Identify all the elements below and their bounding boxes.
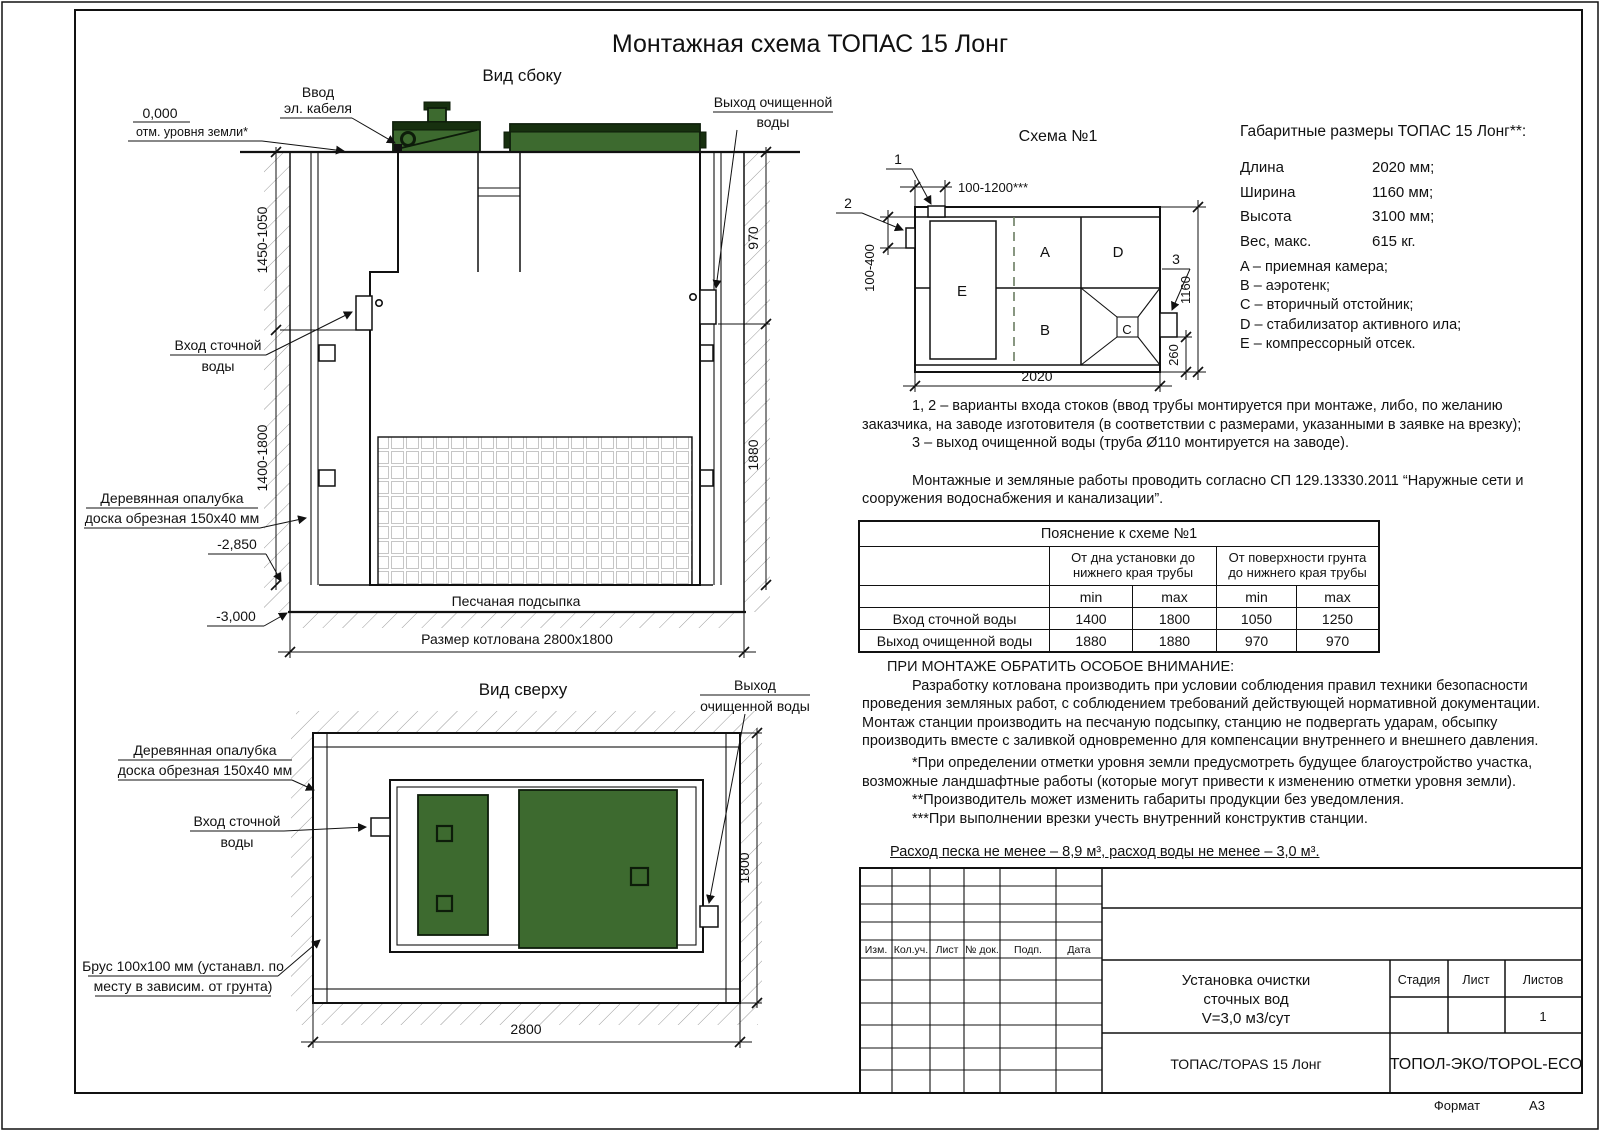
svg-text:Деревянная опалубка: Деревянная опалубка bbox=[133, 742, 276, 758]
marker-3: 3 bbox=[1172, 251, 1180, 267]
top-view-title: Вид сверху bbox=[479, 680, 568, 699]
footnotes-block: *При определении отметки уровня земли пр… bbox=[862, 754, 1557, 828]
svg-text:Лист: Лист bbox=[936, 944, 959, 956]
table-cell: 1400 bbox=[1050, 608, 1133, 630]
spec-row: Длина2020 мм; bbox=[1240, 156, 1434, 181]
svg-text:-2,850: -2,850 bbox=[217, 536, 257, 552]
compartment-e: E bbox=[957, 283, 967, 300]
table-cell: 1050 bbox=[1217, 608, 1297, 630]
specs-heading: Габаритные размеры ТОПАС 15 Лонг**: bbox=[1240, 123, 1526, 141]
right-lid-plan bbox=[519, 790, 677, 948]
footnote-3: ***При выполнении врезки учесть внутренн… bbox=[862, 810, 1557, 829]
table-cell: 1880 bbox=[1133, 630, 1217, 653]
legend-item: B – аэротенк; bbox=[1240, 277, 1461, 296]
dim-length: 2020 bbox=[1021, 368, 1052, 384]
dim-left: 100-400 bbox=[862, 244, 877, 292]
table-cell: 1800 bbox=[1133, 608, 1217, 630]
outlet-stub-plan bbox=[700, 906, 718, 927]
cable-entry-point bbox=[394, 144, 402, 152]
zero-level-label: 0,000 bbox=[142, 105, 177, 121]
table-cell: Вход сточной воды bbox=[859, 608, 1050, 630]
footnote-1: *При определении отметки уровня земли пр… bbox=[862, 754, 1557, 791]
inlet-leader-side: Вход сточной воды bbox=[170, 312, 352, 374]
dim-height: 1160 bbox=[1178, 276, 1193, 304]
marker-2: 2 bbox=[844, 195, 852, 211]
table-cell: 1250 bbox=[1297, 608, 1380, 630]
schema-notes: 1, 2 – варианты входа стоков (ввод трубы… bbox=[862, 397, 1554, 509]
product-name: ТОПАС/TOPAS 15 Лонг bbox=[1170, 1056, 1321, 1072]
spec-row: Ширина1160 мм; bbox=[1240, 181, 1434, 206]
svg-text:Подп.: Подп. bbox=[1014, 944, 1042, 956]
table-cell: 970 bbox=[1297, 630, 1380, 653]
table-cell: min bbox=[1050, 586, 1133, 608]
dim-body-depth: 1400-1800 bbox=[254, 424, 270, 491]
outlet-stub-3 bbox=[1160, 313, 1177, 337]
marker-1: 1 bbox=[894, 151, 902, 167]
dim-pit-size: Размер котлована 2800х1800 bbox=[421, 631, 613, 647]
format-label: Формат bbox=[1434, 1098, 1480, 1113]
left-lid-side bbox=[393, 102, 480, 152]
table-cell: max bbox=[1133, 586, 1217, 608]
table-cell bbox=[859, 586, 1050, 608]
attention-body: Разработку котлована производить при усл… bbox=[862, 677, 1557, 751]
note-variants: 1, 2 – варианты входа стоков (ввод трубы… bbox=[862, 397, 1554, 434]
formwork-leader-top: Деревянная опалубка доска обрезная 150х4… bbox=[118, 742, 314, 790]
doc-title-3: V=3,0 м3/сут bbox=[1202, 1010, 1291, 1027]
svg-text:месту в зависим. от грунта): месту в зависим. от грунта) bbox=[94, 978, 273, 994]
tank-plan bbox=[371, 780, 718, 952]
dim-outlet-depth: 970 bbox=[745, 226, 761, 250]
dim-depth: 1800 bbox=[736, 852, 752, 883]
outlet-leader-side: Выход очищенной воды bbox=[713, 94, 833, 288]
consumption-note: Расход песка не менее – 8,9 м³, расход в… bbox=[890, 844, 1319, 860]
svg-text:-3,000: -3,000 bbox=[216, 608, 256, 624]
stage-header: Стадия bbox=[1398, 973, 1441, 987]
table-cell bbox=[859, 547, 1050, 586]
table-cell: 1880 bbox=[1050, 630, 1133, 653]
tank-side-outline bbox=[370, 152, 700, 585]
dim-outlet-bottom: 1880 bbox=[745, 439, 761, 470]
inlet-label-2: воды bbox=[202, 358, 235, 374]
cable-label-1: Ввод bbox=[302, 84, 334, 100]
table-row: От дна установки до нижнего края трубы О… bbox=[859, 547, 1379, 586]
note-outlet: 3 – выход очищенной воды (труба Ø110 мон… bbox=[862, 434, 1554, 453]
doc-title-2: сточных вод bbox=[1203, 991, 1289, 1008]
top-view-drawing: Вид сверху Выход bbox=[82, 677, 810, 1048]
svg-text:Изм.: Изм. bbox=[865, 944, 888, 956]
cable-label-2: эл. кабеля bbox=[284, 100, 352, 116]
sheet-header: Лист bbox=[1462, 973, 1489, 987]
zero-level-sublabel: отм. уровня земли* bbox=[136, 125, 248, 139]
inlet-stub-plan bbox=[371, 818, 390, 836]
table-title: Пояснение к схеме №1 bbox=[859, 521, 1379, 547]
table-group-1: От дна установки до нижнего края трубы bbox=[1050, 547, 1217, 586]
svg-text:Брус 100х100 мм (устанавл. по: Брус 100х100 мм (устанавл. по bbox=[82, 958, 284, 974]
formwork-label-2: доска обрезная 150х40 мм bbox=[85, 510, 260, 526]
dim-inlet-depth: 1450-1050 bbox=[254, 206, 270, 273]
drawing-sheet: Монтажная схема ТОПАС 15 Лонг Вид сбоку bbox=[0, 0, 1600, 1131]
beam-leader-top: Брус 100х100 мм (устанавл. по месту в за… bbox=[82, 940, 320, 996]
compartment-a: A bbox=[1040, 244, 1050, 261]
title-block-col-headers: Изм. Кол.уч. Лист № док. Подп. Дата bbox=[865, 944, 1091, 956]
right-lid-side bbox=[504, 124, 706, 152]
attention-heading: ПРИ МОНТАЖЕ ОБРАТИТЬ ОСОБОЕ ВНИМАНИЕ: bbox=[862, 658, 1557, 677]
company-name: ТОПОЛ-ЭКО/TOPOL-ECO bbox=[1390, 1056, 1583, 1073]
dim-outlet: 260 bbox=[1166, 344, 1181, 366]
schema-table: Пояснение к схеме №1 От дна установки до… bbox=[858, 520, 1380, 653]
cable-entry-leader: Ввод эл. кабеля bbox=[280, 84, 395, 143]
outlet-label-2: воды bbox=[757, 114, 790, 130]
legend-item: D – стабилизатор активного ила; bbox=[1240, 316, 1461, 335]
left-lid-plan bbox=[418, 795, 488, 935]
sheets-header: Листов bbox=[1523, 973, 1564, 987]
svg-text:Кол.уч.: Кол.уч. bbox=[894, 944, 928, 956]
svg-text:Выход: Выход bbox=[734, 677, 776, 693]
svg-text:воды: воды bbox=[221, 834, 254, 850]
inlet-label-1: Вход сточной bbox=[175, 337, 262, 353]
sand-bedding-label: Песчаная подсыпка bbox=[452, 593, 581, 609]
formwork-label-1: Деревянная опалубка bbox=[100, 490, 243, 506]
format-value: A3 bbox=[1529, 1098, 1545, 1113]
schema-title: Схема №1 bbox=[1019, 128, 1098, 145]
dim-width: 2800 bbox=[510, 1021, 541, 1037]
side-view-title: Вид сбоку bbox=[482, 66, 562, 85]
schema-unit bbox=[906, 206, 1177, 372]
table-cell: min bbox=[1217, 586, 1297, 608]
table-cell: max bbox=[1297, 586, 1380, 608]
outlet-label-1: Выход очищенной bbox=[714, 94, 833, 110]
table-row: Пояснение к схеме №1 bbox=[859, 521, 1379, 547]
schema-drawing: Схема №1 A B C D E bbox=[836, 128, 1206, 392]
compartment-c: C bbox=[1122, 322, 1131, 337]
svg-text:Вход сточной: Вход сточной bbox=[194, 813, 281, 829]
inlet-stub-1 bbox=[928, 206, 945, 217]
table-cell: 970 bbox=[1217, 630, 1297, 653]
doc-title-1: Установка очистки bbox=[1182, 972, 1311, 989]
compartment-d: D bbox=[1113, 244, 1124, 261]
legend-item: E – компрессорный отсек. bbox=[1240, 335, 1461, 354]
note-sp: Монтажные и земляные работы проводить со… bbox=[862, 472, 1554, 509]
attention-block: ПРИ МОНТАЖЕ ОБРАТИТЬ ОСОБОЕ ВНИМАНИЕ: Ра… bbox=[862, 658, 1557, 751]
table-row: min max min max bbox=[859, 586, 1379, 608]
compartment-legend: A – приемная камера; B – аэротенк; C – в… bbox=[1240, 258, 1461, 354]
specs-list: Длина2020 мм; Ширина1160 мм; Высота3100 … bbox=[1240, 156, 1434, 254]
side-view-drawing: Вид сбоку bbox=[84, 66, 833, 658]
footnote-2: **Производитель может изменить габариты … bbox=[862, 791, 1557, 810]
table-group-2: От поверхности грунта до нижнего края тр… bbox=[1217, 547, 1380, 586]
inlet-stub-2 bbox=[906, 228, 915, 248]
compartment-b: B bbox=[1040, 322, 1050, 339]
table-cell: Выход очищенной воды bbox=[859, 630, 1050, 653]
svg-text:№ док.: № док. bbox=[965, 944, 999, 956]
svg-text:Дата: Дата bbox=[1067, 944, 1090, 956]
svg-text:доска обрезная 150х40 мм: доска обрезная 150х40 мм bbox=[118, 762, 293, 778]
spec-row: Вес, макс.615 кг. bbox=[1240, 230, 1434, 255]
svg-text:очищенной воды: очищенной воды bbox=[700, 698, 810, 714]
table-row: Вход сточной воды 1400 1800 1050 1250 bbox=[859, 608, 1379, 630]
table-row: Выход очищенной воды 1880 1880 970 970 bbox=[859, 630, 1379, 653]
title-block-grid bbox=[860, 868, 1102, 1093]
sheets-value: 1 bbox=[1539, 1009, 1546, 1024]
legend-item: C – вторичный отстойник; bbox=[1240, 296, 1461, 315]
spec-row: Высота3100 мм; bbox=[1240, 205, 1434, 230]
legend-item: A – приемная камера; bbox=[1240, 258, 1461, 277]
title-block: Изм. Кол.уч. Лист № док. Подп. Дата Стад… bbox=[860, 868, 1582, 1113]
page-title: Монтажная схема ТОПАС 15 Лонг bbox=[612, 30, 1008, 58]
dim-top: 100-1200*** bbox=[958, 180, 1028, 195]
